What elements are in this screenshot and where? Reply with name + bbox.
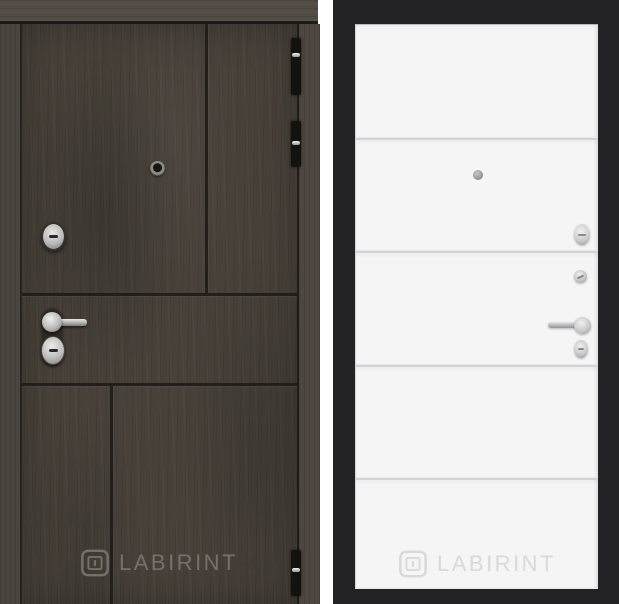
thumb-turn [574, 224, 590, 245]
labirint-watermark-text: LABIRINT [437, 551, 556, 577]
panel-seam-horizontal-2 [22, 383, 297, 386]
door-frame-left [0, 24, 22, 604]
hinge-pin [292, 53, 300, 57]
panel-seam-vertical-top [205, 24, 208, 293]
molding-line-4 [356, 478, 598, 480]
panel-seam-horizontal-1 [22, 293, 297, 296]
door-leaf [22, 24, 297, 604]
key-slot [49, 235, 58, 238]
labirint-watermark: LABIRINT [356, 549, 598, 579]
knob-slot [577, 274, 584, 279]
door-exterior-photo[interactable]: LABIRINT [0, 0, 318, 604]
labirint-watermark: LABIRINT [0, 548, 318, 578]
hinge-top [291, 38, 301, 95]
night-latch-knob [574, 270, 587, 283]
labirint-maze-icon [398, 549, 428, 579]
door-frame-top [0, 0, 318, 24]
key-slot [578, 348, 584, 350]
door-interior-panel: LABIRINT [355, 24, 598, 589]
peephole [150, 161, 165, 176]
handle-rosette [574, 317, 591, 334]
hinge-pin [292, 141, 300, 145]
molding-line-1 [356, 138, 598, 140]
thumb-turn-bar [578, 234, 586, 236]
product-image-pair: LABIRINT LABIR [0, 0, 619, 604]
keyhole-escutcheon [41, 336, 65, 365]
door-interior-photo[interactable]: LABIRINT [333, 0, 619, 604]
lock-cylinder [41, 222, 66, 251]
door-frame-right [297, 24, 320, 604]
peephole [473, 170, 483, 180]
labirint-watermark-text: LABIRINT [119, 550, 238, 576]
hinge-middle [291, 121, 301, 167]
labirint-maze-icon [80, 548, 110, 578]
handle-rosette [42, 312, 62, 332]
key-slot [49, 349, 58, 352]
molding-line-3 [356, 365, 598, 367]
keyhole-escutcheon [574, 340, 588, 358]
molding-line-2 [356, 251, 598, 253]
